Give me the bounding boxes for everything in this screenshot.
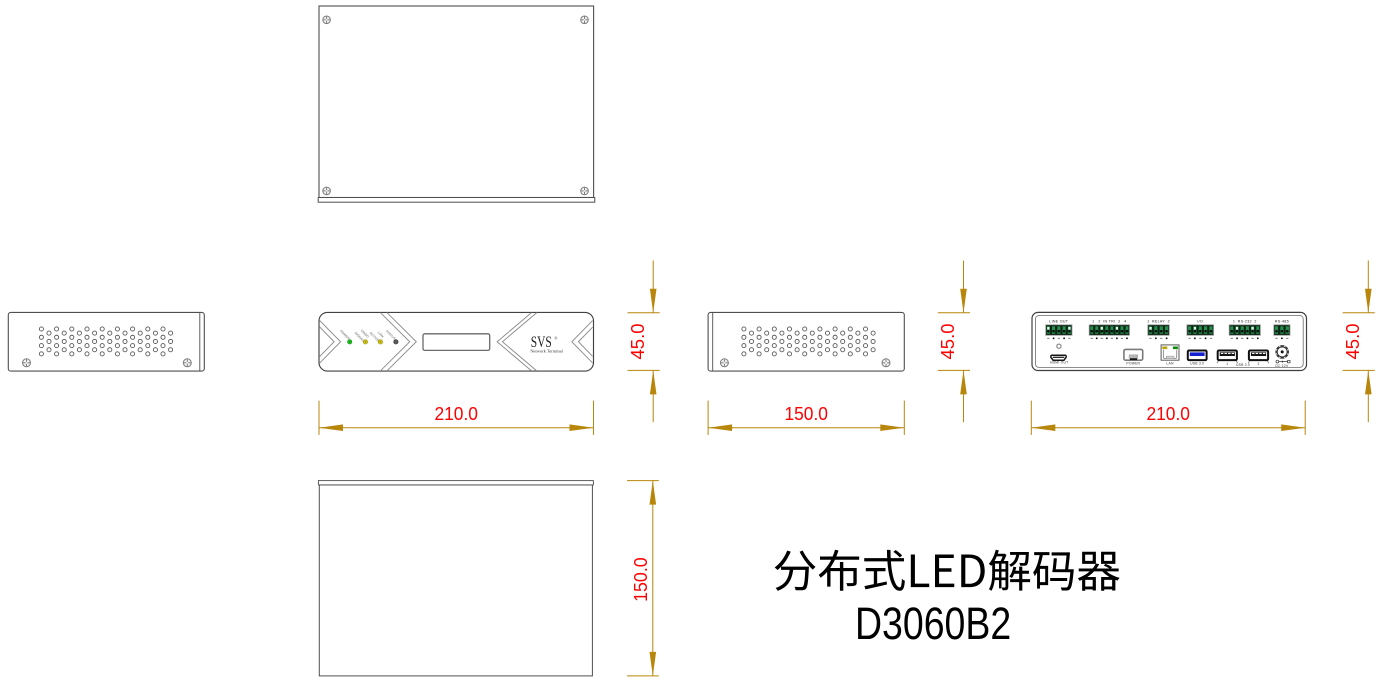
svg-text:HDMI OUT: HDMI OUT [1050,361,1068,365]
svg-text:1: 1 [1226,362,1228,366]
svg-text:LINE OUT: LINE OUT [1049,320,1068,324]
svg-text:45.0: 45.0 [937,324,958,360]
svg-text:LAN: LAN [1166,362,1174,366]
svg-text:USB 2.0: USB 2.0 [1236,363,1250,367]
svg-text:I/O: I/O [1197,320,1203,324]
svg-text:®: ® [554,336,557,341]
svg-text:DC 12V: DC 12V [1275,364,1289,368]
svg-text:RS-485: RS-485 [1275,320,1289,324]
svg-text:1 RS-232 2: 1 RS-232 2 [1233,320,1257,324]
svg-text:45.0: 45.0 [627,324,648,360]
svg-text:150.0: 150.0 [630,557,651,602]
svg-text:210.0: 210.0 [434,403,478,424]
svg-text:D3060B2: D3060B2 [855,598,1011,649]
svg-text:45.0: 45.0 [1342,324,1363,360]
svg-text:1 2 IN TRI 3 4: 1 2 IN TRI 3 4 [1092,320,1126,324]
svg-text:210.0: 210.0 [1146,403,1190,424]
svg-text:USB 3.0: USB 3.0 [1190,362,1204,366]
svg-text:POWER: POWER [1126,361,1140,365]
svg-text:2: 2 [1257,362,1259,366]
svg-text:1 RELAY 2: 1 RELAY 2 [1147,320,1170,324]
svg-text:150.0: 150.0 [784,403,828,424]
svg-text:Network Terminal: Network Terminal [530,349,563,354]
